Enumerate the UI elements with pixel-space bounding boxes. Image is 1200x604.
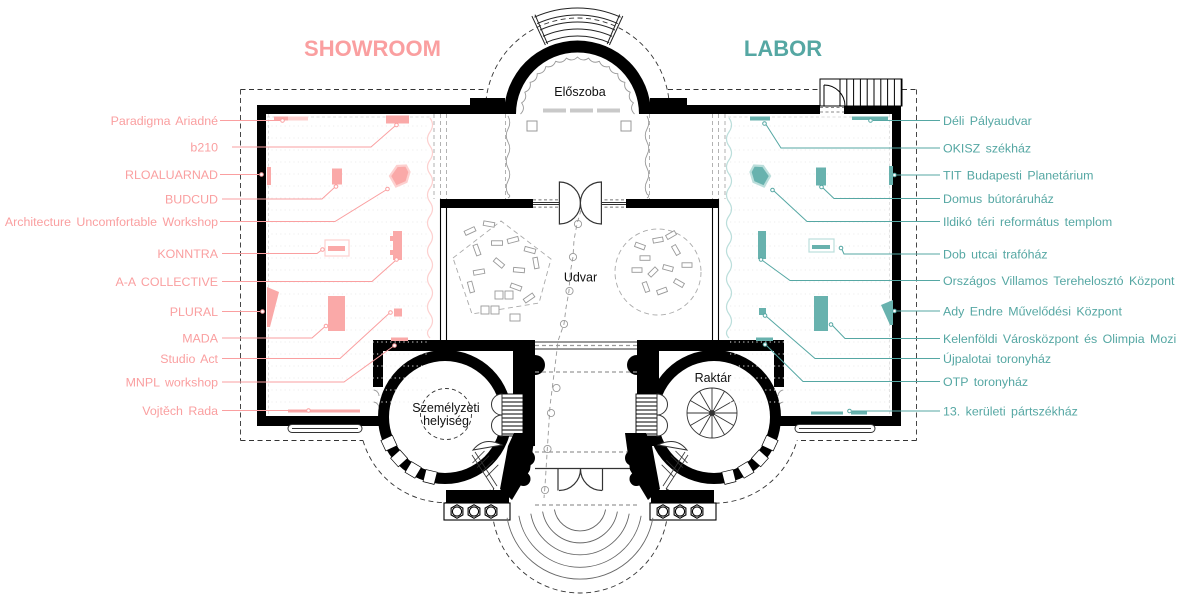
- svg-text:Vojtěch Rada: Vojtěch Rada: [142, 404, 218, 418]
- svg-text:MNPL workshop: MNPL workshop: [126, 376, 219, 390]
- svg-text:OKISZ székház: OKISZ székház: [943, 142, 1031, 156]
- svg-text:Országos Villamos Terehelosztó: Országos Villamos Terehelosztó Központ: [943, 274, 1175, 288]
- svg-text:TIT Budapesti Planetárium: TIT Budapesti Planetárium: [943, 169, 1093, 183]
- svg-text:A-A COLLECTIVE: A-A COLLECTIVE: [115, 275, 218, 289]
- svg-text:KONNTRA: KONNTRA: [157, 247, 218, 261]
- svg-text:Raktár: Raktár: [695, 371, 732, 385]
- svg-text:MADA: MADA: [182, 332, 219, 346]
- svg-text:PLURAL: PLURAL: [170, 305, 218, 319]
- svg-text:SHOWROOM: SHOWROOM: [304, 36, 441, 61]
- svg-text:OTP toronyház: OTP toronyház: [943, 375, 1028, 389]
- svg-text:Dob utcai trafóház: Dob utcai trafóház: [943, 248, 1048, 262]
- svg-text:Újpalotai toronyház: Újpalotai toronyház: [943, 351, 1051, 366]
- svg-text:Domus bútoráruház: Domus bútoráruház: [943, 192, 1054, 206]
- svg-text:RLOALUARNAD: RLOALUARNAD: [125, 168, 218, 182]
- svg-text:BUDCUD: BUDCUD: [165, 193, 218, 207]
- svg-text:Személyzeti: Személyzeti: [412, 401, 479, 415]
- svg-text:Ildikó téri református templom: Ildikó téri református templom: [943, 215, 1112, 229]
- svg-text:Előszoba: Előszoba: [554, 85, 605, 99]
- svg-text:Kelenföldi Városközpont és Oli: Kelenföldi Városközpont és Olimpia Mozi: [943, 332, 1176, 346]
- svg-text:b210: b210: [190, 141, 218, 155]
- svg-text:Déli Pályaudvar: Déli Pályaudvar: [943, 114, 1032, 128]
- svg-text:Udvar: Udvar: [564, 271, 597, 285]
- svg-text:Architecture Uncomfortable Wor: Architecture Uncomfortable Workshop: [5, 215, 218, 229]
- svg-text:Ady Endre Művelődési Központ: Ady Endre Művelődési Központ: [943, 305, 1122, 319]
- svg-text:helyiség: helyiség: [423, 414, 469, 428]
- svg-text:LABOR: LABOR: [744, 36, 822, 61]
- svg-text:13. kerületi pártszékház: 13. kerületi pártszékház: [943, 405, 1078, 419]
- svg-text:Studio Act: Studio Act: [160, 352, 218, 366]
- svg-text:Paradigma Ariadné: Paradigma Ariadné: [111, 114, 218, 128]
